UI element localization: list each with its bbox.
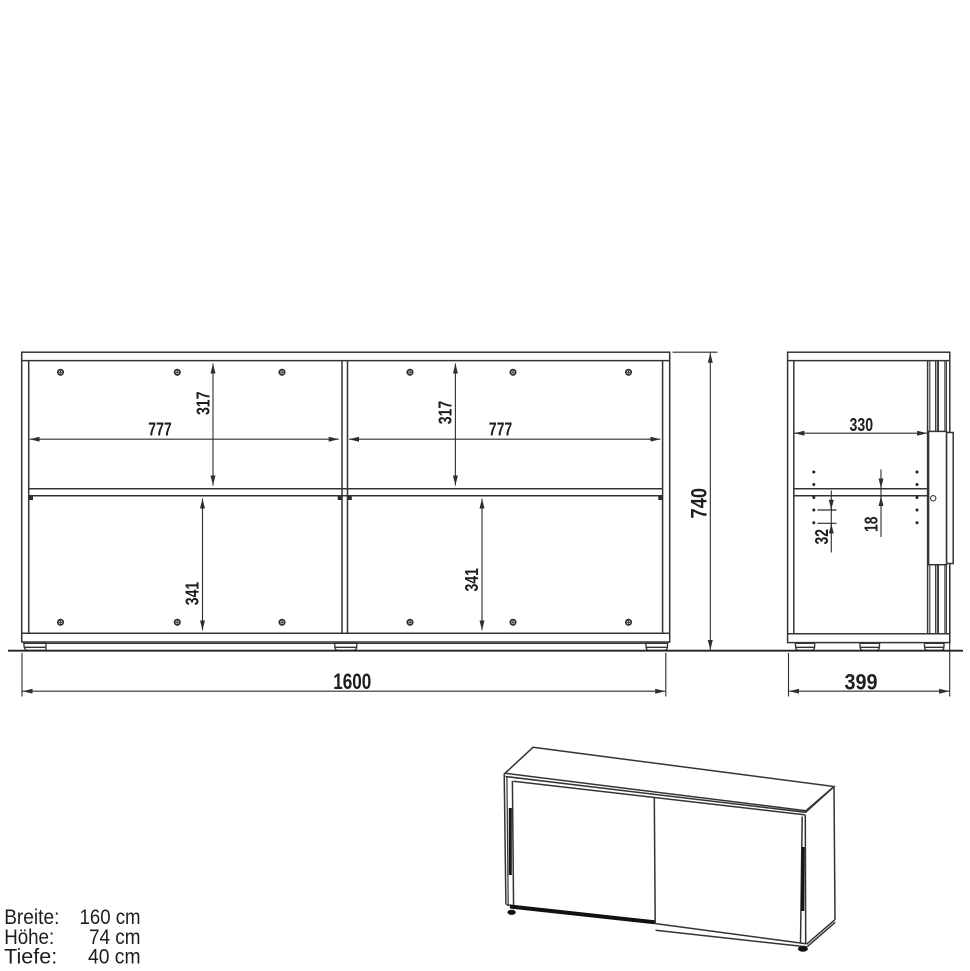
svg-text:1600: 1600 [333,669,371,694]
svg-text:399: 399 [845,669,878,694]
svg-text:341: 341 [183,582,203,606]
svg-text:317: 317 [436,401,456,425]
svg-text:18: 18 [862,516,882,532]
svg-text:341: 341 [462,568,482,592]
svg-text:777: 777 [148,420,172,440]
svg-text:Tiefe:: Tiefe: [4,946,57,969]
svg-text:330: 330 [850,415,874,435]
svg-text:740: 740 [687,488,712,519]
svg-text:317: 317 [193,392,213,416]
svg-text:32: 32 [812,529,832,545]
svg-text:777: 777 [489,420,513,440]
svg-text:40 cm: 40 cm [88,946,141,969]
